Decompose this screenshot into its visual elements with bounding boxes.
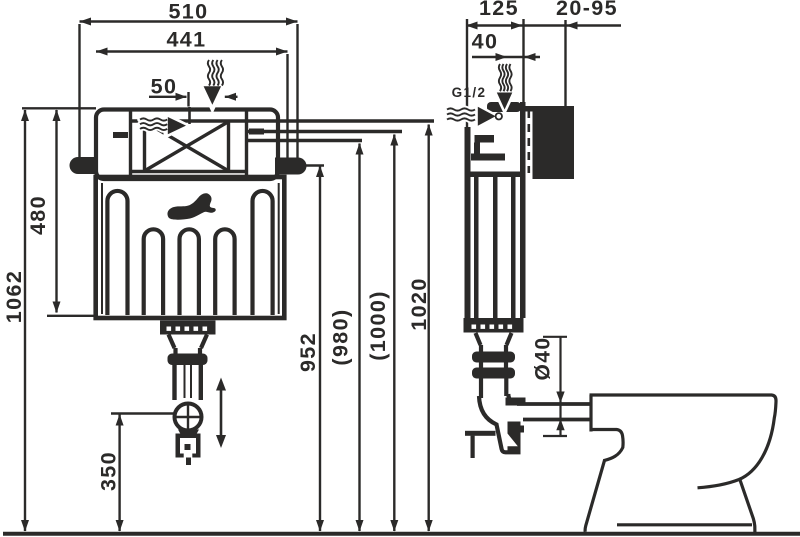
svg-text:510: 510	[168, 0, 208, 24]
svg-text:1020: 1020	[407, 277, 431, 330]
svg-text:(980): (980)	[329, 308, 353, 365]
svg-text:20-95: 20-95	[556, 0, 618, 20]
svg-text:G1/2: G1/2	[452, 85, 487, 100]
svg-text:441: 441	[166, 28, 206, 52]
svg-text:50: 50	[151, 75, 178, 99]
svg-text:350: 350	[97, 451, 121, 491]
svg-text:(1000): (1000)	[366, 290, 390, 361]
svg-text:125: 125	[479, 0, 519, 20]
svg-text:Ø40: Ø40	[532, 337, 555, 381]
svg-text:952: 952	[296, 332, 320, 372]
svg-text:480: 480	[26, 195, 50, 235]
svg-text:1062: 1062	[2, 270, 26, 323]
svg-text:40: 40	[472, 30, 499, 54]
